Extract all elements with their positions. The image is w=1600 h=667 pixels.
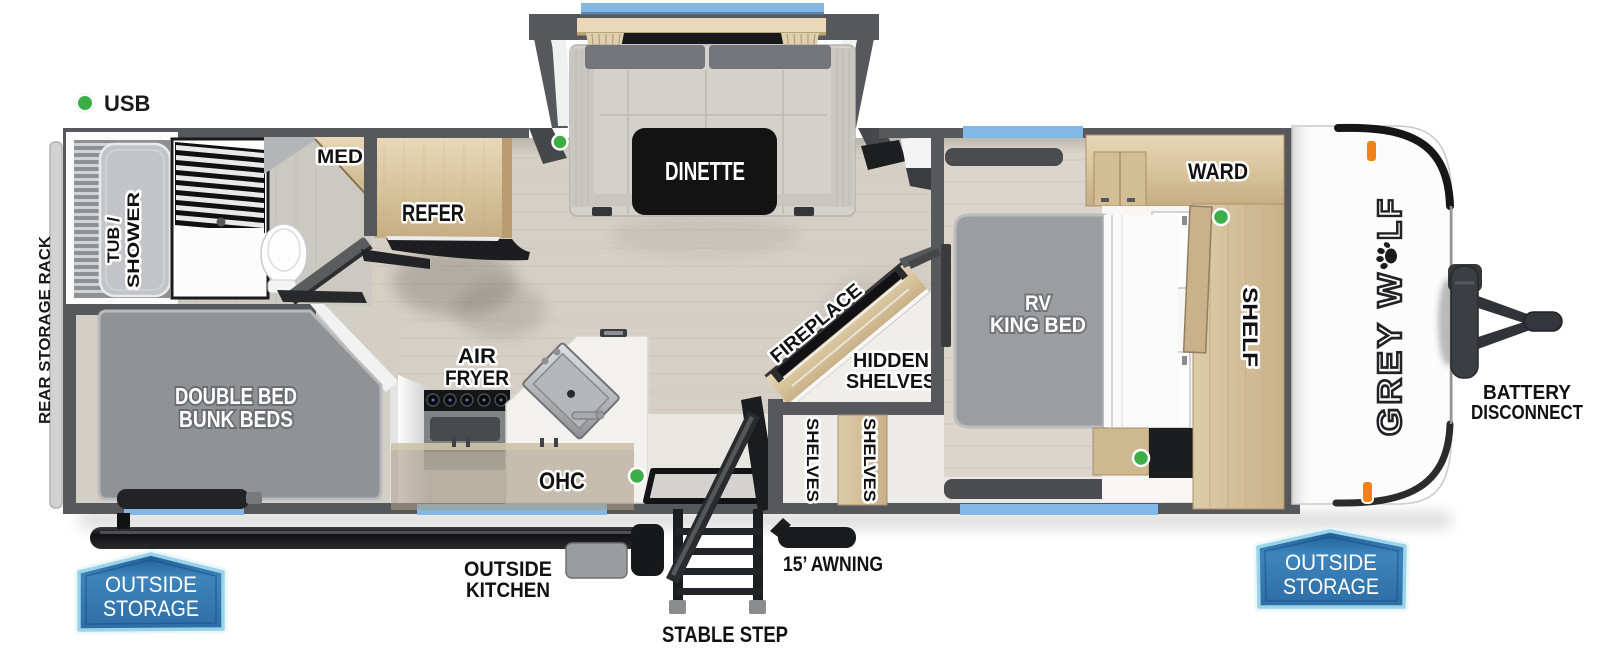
svg-text:STABLE STEP: STABLE STEP [662,622,788,647]
svg-text:REAR STORAGE RACK: REAR STORAGE RACK [37,236,54,424]
svg-text:MED: MED [317,147,363,168]
svg-text:DINETTE: DINETTE [665,156,745,186]
svg-text:USB: USB [104,91,150,116]
svg-text:SHELVES: SHELVES [846,371,936,393]
svg-text:SHELVES: SHELVES [860,418,879,502]
svg-text:AIR: AIR [458,345,496,368]
svg-text:GREY W: GREY W [1371,270,1408,436]
svg-text:LF: LF [1371,196,1408,240]
svg-text:BUNK BEDS: BUNK BEDS [179,406,293,432]
svg-text:KING BED: KING BED [990,314,1086,337]
svg-text:SHELF: SHELF [1238,287,1261,367]
svg-text:HIDDEN: HIDDEN [853,350,929,372]
svg-text:WARD: WARD [1188,159,1248,184]
svg-text:OUTSIDE: OUTSIDE [105,572,197,597]
svg-text:SHELVES: SHELVES [803,418,822,502]
svg-text:OUTSIDE: OUTSIDE [464,558,552,581]
svg-text:STORAGE: STORAGE [103,596,199,621]
svg-text:DISCONNECT: DISCONNECT [1471,402,1583,424]
svg-text:RV: RV [1025,292,1051,315]
svg-text:TUB /: TUB / [104,217,123,263]
svg-text:OUTSIDE: OUTSIDE [1285,550,1377,575]
svg-text:BATTERY: BATTERY [1483,382,1572,404]
svg-text:KITCHEN: KITCHEN [466,579,550,602]
svg-text:15’ AWNING: 15’ AWNING [783,553,883,576]
svg-text:REFER: REFER [402,200,464,227]
svg-text:STORAGE: STORAGE [1283,574,1379,599]
svg-text:SHOWER: SHOWER [124,192,143,288]
svg-text:OHC: OHC [539,468,585,495]
svg-text:FRYER: FRYER [445,367,509,390]
